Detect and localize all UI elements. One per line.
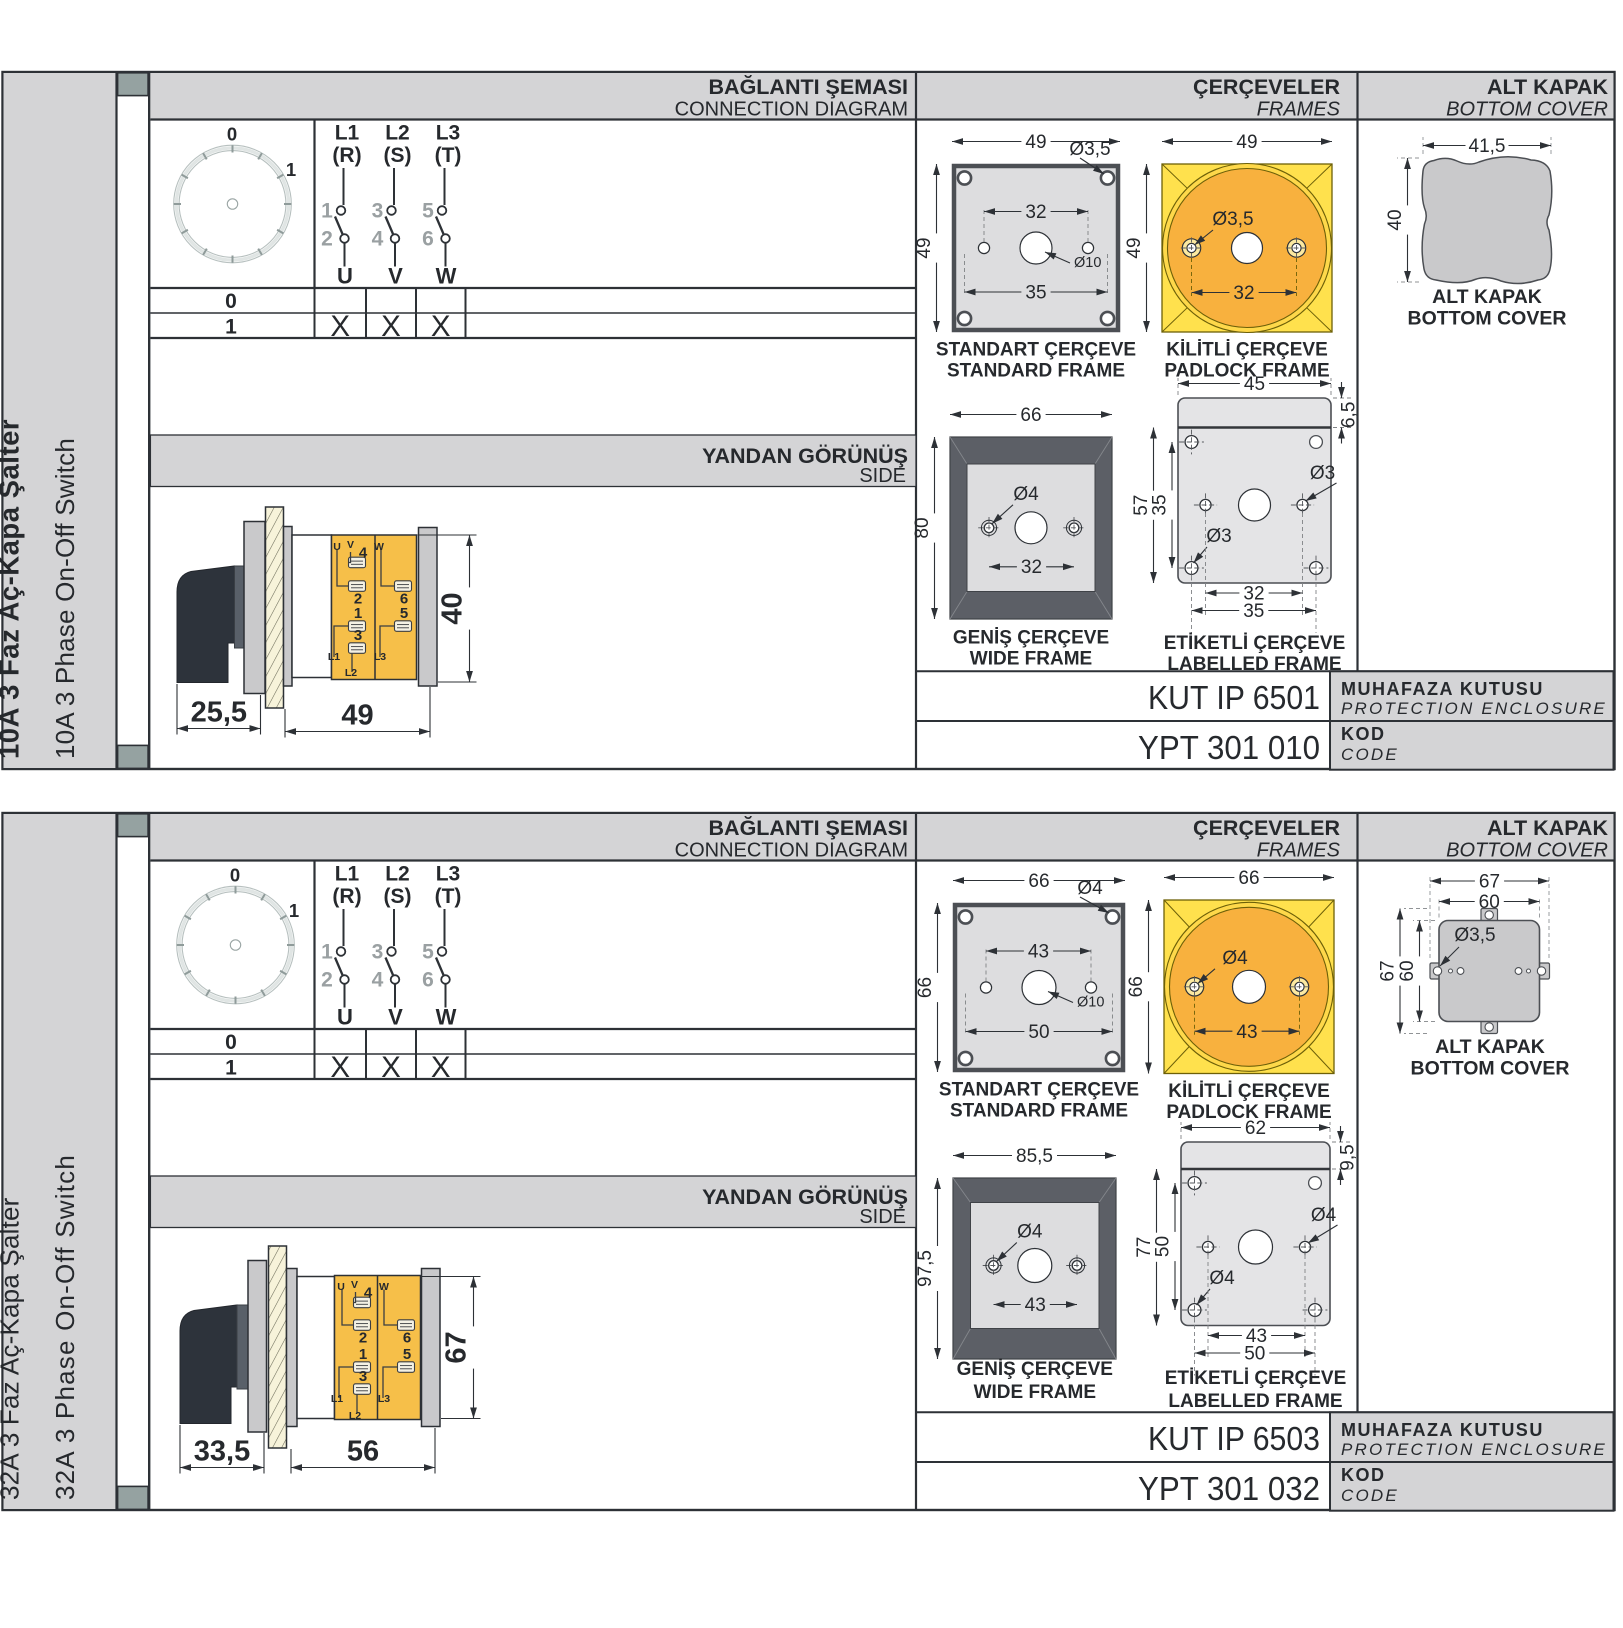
- svg-text:41,5: 41,5: [1469, 136, 1506, 157]
- svg-text:67: 67: [1479, 872, 1500, 893]
- svg-text:L3: L3: [436, 122, 461, 145]
- svg-text:ETİKETLİ ÇERÇEVE: ETİKETLİ ÇERÇEVE: [1164, 633, 1346, 654]
- svg-text:X: X: [330, 310, 350, 343]
- svg-text:KOD: KOD: [1341, 1465, 1386, 1485]
- svg-text:4: 4: [372, 969, 384, 992]
- svg-text:U: U: [337, 1281, 345, 1293]
- svg-text:L1: L1: [335, 122, 360, 145]
- svg-text:W: W: [436, 264, 457, 289]
- svg-text:62: 62: [1245, 1118, 1266, 1139]
- svg-text:L1: L1: [335, 863, 360, 886]
- svg-text:L2: L2: [385, 122, 410, 145]
- svg-text:1: 1: [321, 200, 333, 223]
- svg-text:1: 1: [359, 1346, 367, 1363]
- svg-text:60: 60: [1479, 892, 1500, 913]
- svg-text:MUHAFAZA KUTUSU: MUHAFAZA KUTUSU: [1341, 1420, 1544, 1440]
- svg-text:32: 32: [1233, 283, 1254, 304]
- svg-text:10A 3 Phase On-Off Switch: 10A 3 Phase On-Off Switch: [50, 438, 80, 759]
- svg-text:ETİKETLİ ÇERÇEVE: ETİKETLİ ÇERÇEVE: [1165, 1368, 1347, 1389]
- svg-text:CONNECTION DIAGRAM: CONNECTION DIAGRAM: [675, 840, 908, 862]
- svg-text:KUT IP 6503: KUT IP 6503: [1148, 1420, 1320, 1457]
- svg-text:X: X: [431, 310, 451, 343]
- svg-text:Ø3: Ø3: [1206, 526, 1231, 547]
- svg-text:STANDARD FRAME: STANDARD FRAME: [950, 1101, 1128, 1122]
- svg-text:KİLİTLİ ÇERÇEVE: KİLİTLİ ÇERÇEVE: [1166, 340, 1328, 361]
- svg-text:MUHAFAZA KUTUSU: MUHAFAZA KUTUSU: [1341, 679, 1544, 699]
- svg-text:1: 1: [321, 941, 333, 964]
- svg-text:SIDE: SIDE: [859, 465, 906, 487]
- svg-text:W: W: [379, 1281, 389, 1293]
- svg-text:V: V: [347, 539, 354, 551]
- svg-text:KUT IP 6501: KUT IP 6501: [1148, 679, 1320, 716]
- svg-text:X: X: [381, 310, 401, 343]
- svg-text:1: 1: [225, 316, 237, 339]
- svg-text:BOTTOM COVER: BOTTOM COVER: [1411, 1058, 1570, 1080]
- svg-text:ÇERÇEVELER: ÇERÇEVELER: [1193, 75, 1340, 99]
- svg-text:L1: L1: [331, 1393, 343, 1405]
- svg-text:25,5: 25,5: [191, 697, 247, 729]
- svg-text:V: V: [351, 1279, 358, 1291]
- svg-text:(T): (T): [435, 885, 462, 908]
- svg-text:(R): (R): [332, 885, 361, 908]
- svg-text:V: V: [388, 264, 403, 289]
- svg-text:50: 50: [1028, 1022, 1049, 1043]
- svg-text:ALT KAPAK: ALT KAPAK: [1487, 816, 1608, 840]
- svg-text:6: 6: [422, 228, 434, 251]
- svg-text:STANDARD FRAME: STANDARD FRAME: [947, 361, 1125, 382]
- svg-text:WIDE FRAME: WIDE FRAME: [970, 649, 1092, 670]
- svg-text:L3: L3: [436, 863, 461, 886]
- svg-text:BAĞLANTI ŞEMASI: BAĞLANTI ŞEMASI: [709, 815, 908, 840]
- svg-text:Ø4: Ø4: [1077, 878, 1103, 899]
- svg-text:67: 67: [1378, 960, 1399, 981]
- svg-text:49: 49: [1124, 237, 1145, 258]
- svg-text:Ø3,5: Ø3,5: [1454, 925, 1495, 946]
- svg-text:6: 6: [403, 1330, 411, 1347]
- svg-text:66: 66: [1238, 868, 1259, 889]
- svg-text:5: 5: [422, 200, 434, 223]
- svg-text:Ø3: Ø3: [1310, 463, 1335, 484]
- svg-text:U: U: [337, 1005, 353, 1030]
- svg-text:66: 66: [915, 977, 936, 998]
- svg-text:2: 2: [359, 1330, 367, 1347]
- svg-text:5: 5: [400, 605, 408, 622]
- svg-text:3: 3: [372, 941, 384, 964]
- svg-text:45: 45: [1244, 374, 1265, 395]
- svg-text:2: 2: [321, 969, 333, 992]
- svg-text:Ø10: Ø10: [1074, 255, 1101, 271]
- svg-text:43: 43: [1236, 1022, 1257, 1043]
- svg-text:0: 0: [225, 290, 237, 313]
- svg-text:49: 49: [341, 700, 373, 732]
- svg-text:X: X: [381, 1051, 401, 1084]
- svg-text:3: 3: [354, 627, 362, 644]
- svg-text:5: 5: [403, 1346, 411, 1363]
- svg-text:67: 67: [441, 1331, 473, 1363]
- svg-text:ALT KAPAK: ALT KAPAK: [1487, 75, 1608, 99]
- svg-text:U: U: [333, 541, 341, 553]
- svg-text:40: 40: [437, 592, 469, 624]
- svg-text:49: 49: [1025, 132, 1046, 153]
- svg-text:35: 35: [1243, 601, 1264, 622]
- svg-text:L3: L3: [374, 651, 386, 663]
- svg-text:0: 0: [230, 865, 240, 886]
- svg-text:Ø3,5: Ø3,5: [1212, 209, 1253, 230]
- svg-text:LABELLED FRAME: LABELLED FRAME: [1168, 1391, 1342, 1412]
- svg-text:3: 3: [372, 200, 384, 223]
- svg-text:4: 4: [364, 1285, 373, 1302]
- svg-text:32A 3 Phase On-Off Switch: 32A 3 Phase On-Off Switch: [50, 1154, 80, 1500]
- svg-text:PROTECTION ENCLOSURE: PROTECTION ENCLOSURE: [1341, 699, 1607, 718]
- svg-text:80: 80: [912, 517, 933, 538]
- svg-text:32: 32: [1025, 202, 1046, 223]
- svg-text:35: 35: [1150, 494, 1171, 515]
- svg-text:10A 3 Faz Aç-Kapa Şalter: 10A 3 Faz Aç-Kapa Şalter: [0, 419, 25, 759]
- svg-text:CODE: CODE: [1341, 1486, 1399, 1505]
- svg-text:ALT KAPAK: ALT KAPAK: [1435, 1036, 1545, 1058]
- svg-text:YPT 301 032: YPT 301 032: [1138, 1470, 1320, 1507]
- svg-text:1: 1: [354, 605, 362, 622]
- svg-text:40: 40: [1385, 209, 1406, 230]
- svg-text:SIDE: SIDE: [859, 1206, 906, 1228]
- svg-text:1: 1: [225, 1057, 237, 1080]
- svg-text:L2: L2: [345, 667, 357, 679]
- svg-text:Ø10: Ø10: [1077, 995, 1104, 1011]
- svg-text:0: 0: [227, 124, 237, 145]
- svg-text:GENİŞ ÇERÇEVE: GENİŞ ÇERÇEVE: [953, 628, 1109, 649]
- svg-text:FRAMES: FRAMES: [1257, 99, 1341, 121]
- svg-text:X: X: [431, 1051, 451, 1084]
- svg-text:BOTTOM COVER: BOTTOM COVER: [1446, 840, 1608, 862]
- svg-text:43: 43: [1028, 942, 1049, 963]
- svg-text:1: 1: [289, 900, 299, 921]
- svg-text:Ø4: Ø4: [1013, 484, 1039, 505]
- svg-text:CODE: CODE: [1341, 745, 1399, 764]
- svg-text:(S): (S): [384, 144, 412, 167]
- svg-text:0: 0: [225, 1031, 237, 1054]
- svg-text:Ø4: Ø4: [1209, 1268, 1235, 1289]
- svg-text:ALT KAPAK: ALT KAPAK: [1432, 286, 1542, 308]
- svg-text:L2: L2: [385, 863, 410, 886]
- svg-text:56: 56: [347, 1436, 379, 1468]
- svg-text:49: 49: [914, 237, 935, 258]
- svg-text:L2: L2: [349, 1410, 361, 1422]
- svg-text:L1: L1: [328, 651, 340, 663]
- svg-text:32A 3 Faz Aç-Kapa Şalter: 32A 3 Faz Aç-Kapa Şalter: [0, 1197, 25, 1500]
- svg-text:WIDE FRAME: WIDE FRAME: [974, 1382, 1096, 1403]
- svg-text:KOD: KOD: [1341, 724, 1386, 744]
- svg-text:4: 4: [372, 228, 384, 251]
- svg-text:STANDART ÇERÇEVE: STANDART ÇERÇEVE: [936, 340, 1136, 361]
- svg-text:6,5: 6,5: [1339, 402, 1360, 428]
- svg-text:W: W: [436, 1005, 457, 1030]
- svg-text:85,5: 85,5: [1016, 1146, 1053, 1167]
- svg-text:STANDART ÇERÇEVE: STANDART ÇERÇEVE: [939, 1080, 1139, 1101]
- svg-text:GENİŞ ÇERÇEVE: GENİŞ ÇERÇEVE: [957, 1359, 1113, 1380]
- svg-text:L3: L3: [378, 1393, 390, 1405]
- svg-text:5: 5: [422, 941, 434, 964]
- svg-text:6: 6: [422, 969, 434, 992]
- svg-text:(S): (S): [384, 885, 412, 908]
- svg-text:Ø3,5: Ø3,5: [1069, 139, 1110, 160]
- svg-text:Ø4: Ø4: [1222, 948, 1248, 969]
- svg-text:FRAMES: FRAMES: [1257, 840, 1341, 862]
- svg-text:49: 49: [1236, 132, 1257, 153]
- svg-text:66: 66: [1020, 405, 1041, 426]
- svg-text:66: 66: [1028, 871, 1049, 892]
- svg-text:V: V: [388, 1005, 403, 1030]
- svg-text:43: 43: [1025, 1295, 1046, 1316]
- svg-text:YPT 301 010: YPT 301 010: [1138, 729, 1320, 766]
- svg-text:32: 32: [1021, 557, 1042, 578]
- svg-text:(T): (T): [435, 144, 462, 167]
- svg-text:KİLİTLİ ÇERÇEVE: KİLİTLİ ÇERÇEVE: [1168, 1081, 1330, 1102]
- svg-text:W: W: [374, 541, 384, 553]
- svg-text:3: 3: [359, 1368, 367, 1385]
- svg-text:50: 50: [1244, 1344, 1265, 1365]
- svg-text:ÇERÇEVELER: ÇERÇEVELER: [1193, 816, 1340, 840]
- svg-text:PROTECTION ENCLOSURE: PROTECTION ENCLOSURE: [1341, 1440, 1607, 1459]
- svg-text:BOTTOM COVER: BOTTOM COVER: [1408, 308, 1567, 330]
- svg-text:50: 50: [1153, 1236, 1174, 1257]
- svg-text:33,5: 33,5: [194, 1436, 250, 1468]
- svg-text:BAĞLANTI ŞEMASI: BAĞLANTI ŞEMASI: [709, 74, 908, 99]
- svg-text:4: 4: [359, 545, 368, 562]
- svg-text:1: 1: [286, 159, 296, 180]
- svg-text:60: 60: [1397, 960, 1418, 981]
- svg-text:CONNECTION DIAGRAM: CONNECTION DIAGRAM: [675, 99, 908, 121]
- svg-text:Ø4: Ø4: [1017, 1222, 1043, 1243]
- svg-text:BOTTOM COVER: BOTTOM COVER: [1446, 99, 1608, 121]
- svg-text:35: 35: [1025, 283, 1046, 304]
- svg-text:2: 2: [321, 228, 333, 251]
- svg-text:97,5: 97,5: [915, 1250, 936, 1287]
- svg-text:(R): (R): [332, 144, 361, 167]
- svg-text:U: U: [337, 264, 353, 289]
- svg-text:X: X: [330, 1051, 350, 1084]
- svg-text:9,5: 9,5: [1338, 1144, 1359, 1170]
- svg-text:66: 66: [1126, 976, 1147, 997]
- svg-text:Ø4: Ø4: [1311, 1205, 1337, 1226]
